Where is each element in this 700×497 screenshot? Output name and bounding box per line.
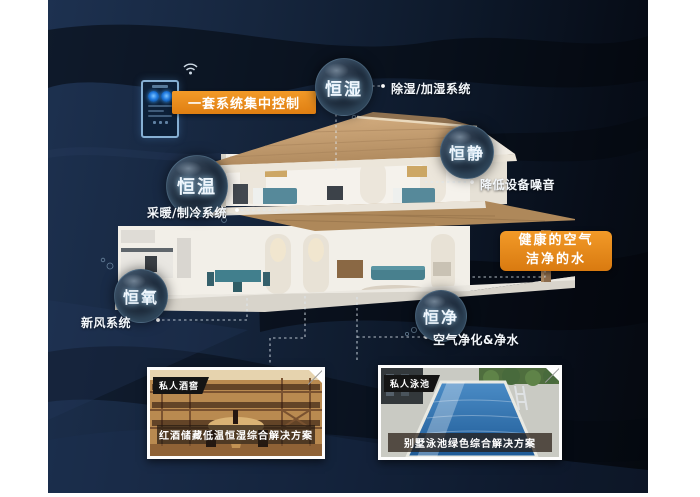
phone-text-row (148, 105, 172, 107)
phone-dial-knob-left (148, 91, 159, 102)
label-fresh-air-system: 新风系统 (81, 314, 131, 331)
infographic-canvas: 一套系统集中控制 恒湿 恒静 恒温 恒氧 恒净 除湿/加湿系统 降低设备噪音 采… (0, 0, 700, 497)
wine-cellar-caption: 红酒储藏低温恒湿综合解决方案 (157, 425, 315, 444)
phone-screen-header (152, 85, 168, 88)
pool-card: 私人泳池 别墅泳池绿色综合解决方案 (378, 365, 562, 460)
phone-text-row (148, 110, 164, 112)
phone-dial-knob-right (161, 91, 172, 102)
label-air-water-purification: 空气净化&净水 (433, 331, 519, 348)
wifi-icon (182, 61, 199, 76)
clean-water-line: 洁净的水 (526, 251, 586, 270)
healthy-air-line: 健康的空气 (518, 232, 593, 251)
central-control-tag: 一套系统集中控制 (172, 91, 316, 114)
wine-cellar-card: 私人酒窖 红酒储藏低温恒湿综合解决方案 (147, 367, 325, 459)
central-control-label: 一套系统集中控制 (188, 93, 300, 112)
bubble-constant-quiet: 恒静 (440, 125, 494, 179)
phone-button-row (146, 121, 174, 124)
label-dehumidify-system: 除湿/加湿系统 (391, 80, 471, 97)
pool-caption: 别墅泳池绿色综合解决方案 (388, 433, 552, 452)
pool-tag: 私人泳池 (384, 375, 440, 392)
wine-cellar-tag: 私人酒窖 (153, 377, 209, 394)
bubble-constant-humidity: 恒湿 (315, 58, 373, 116)
phone-text-row (148, 115, 172, 117)
label-noise-reduction: 降低设备噪音 (480, 176, 555, 193)
healthy-air-clean-water-box: 健康的空气 洁净的水 (500, 231, 612, 271)
dark-stage: 一套系统集中控制 恒湿 恒静 恒温 恒氧 恒净 除湿/加湿系统 降低设备噪音 采… (48, 0, 648, 493)
label-heating-cooling-system: 采暖/制冷系统 (147, 204, 227, 221)
